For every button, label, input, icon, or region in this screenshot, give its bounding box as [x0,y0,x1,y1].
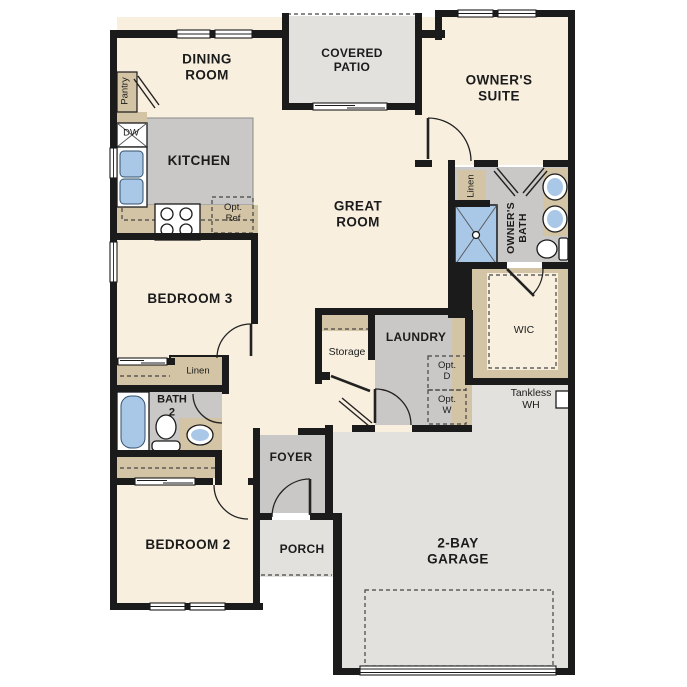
shower-drain [473,232,480,239]
bedroom2-closet-slider [135,478,195,485]
bathtub [121,396,145,448]
garage-door [360,666,556,675]
room-label-laundry: LAUNDRY [386,331,446,345]
label-line: DINING [182,51,232,66]
room-label-covered-patio: COVEREDPATIO [321,47,382,75]
room-label-owners-bath: OWNER'SBATH [505,202,529,254]
label-tankless-wh: TanklessWH [511,387,552,411]
label-linen-hall: Linen [186,367,209,378]
room-label-dining: DININGROOM [182,51,232,82]
owners-sink-2-basin [547,210,563,228]
label-line: Tankless [511,387,552,399]
floor-plan-drawing [0,0,687,687]
bath2-sink-basin [191,429,209,441]
room-label-garage: 2-BAYGARAGE [427,535,489,566]
label-opt-washer: Opt.W [438,395,456,417]
label-opt-dryer: Opt.D [438,361,456,383]
room-label-great-room: GREATROOM [334,198,382,229]
room-label-storage: Storage [329,346,366,358]
label-line: ROOM [336,214,380,229]
label-line: D [444,371,451,382]
label-line: Ref [226,213,241,224]
label-line: SUITE [478,88,520,103]
room-label-kitchen: KITCHEN [168,153,231,169]
owners-toilet-bowl [537,240,557,258]
owners-toilet-tank [559,238,568,260]
label-line: GARAGE [427,551,489,566]
label-line: GREAT [334,198,382,213]
hall-nook-floor [217,435,253,485]
kitchen-sink-basin-2 [120,179,143,204]
owners-sink-1-basin [547,178,563,196]
bedroom3-closet-slider [118,358,167,365]
label-line: W [443,405,452,416]
room-label-bedroom2: BEDROOM 2 [145,537,230,553]
label-line: ROOM [185,67,229,82]
label-line: PATIO [334,60,370,74]
room-label-porch: PORCH [280,543,325,557]
label-line: BATH [157,393,187,405]
label-line: Opt. [438,360,456,371]
floor-plan: DININGROOM COVEREDPATIO OWNER'SSUITE GRE… [0,0,687,687]
label-line: COVERED [321,46,382,60]
room-label-owners-suite: OWNER'SSUITE [466,72,533,103]
kitchen-sink-basin-1 [120,151,143,177]
label-line: Opt. [224,202,242,213]
label-line: OWNER'S [466,72,533,87]
room-label-bedroom3: BEDROOM 3 [147,291,232,307]
label-dishwasher: DW [123,129,139,140]
foyer-floor [260,435,325,513]
label-line: 2 [169,406,175,418]
label-line: Opt. [438,394,456,405]
label-linen-owners: Linen [467,174,478,197]
label-opt-ref: Opt.Ref [224,203,242,225]
patio-sliding-door [313,103,387,110]
label-line: OWNER'S [505,202,517,254]
room-label-bath2: BATH2 [157,393,187,418]
bedroom3-closet-shelf [117,365,172,385]
stove-burner [161,208,173,220]
room-label-wic: WIC [514,324,534,336]
label-pantry: Pantry [121,77,132,104]
stove-burner [180,208,192,220]
label-line: 2-BAY [437,535,478,550]
bath2-toilet-tank [152,441,180,451]
label-line: BATH [517,213,529,243]
label-line: WH [522,399,540,411]
wic-floor [487,273,558,370]
room-label-foyer: FOYER [270,451,313,465]
